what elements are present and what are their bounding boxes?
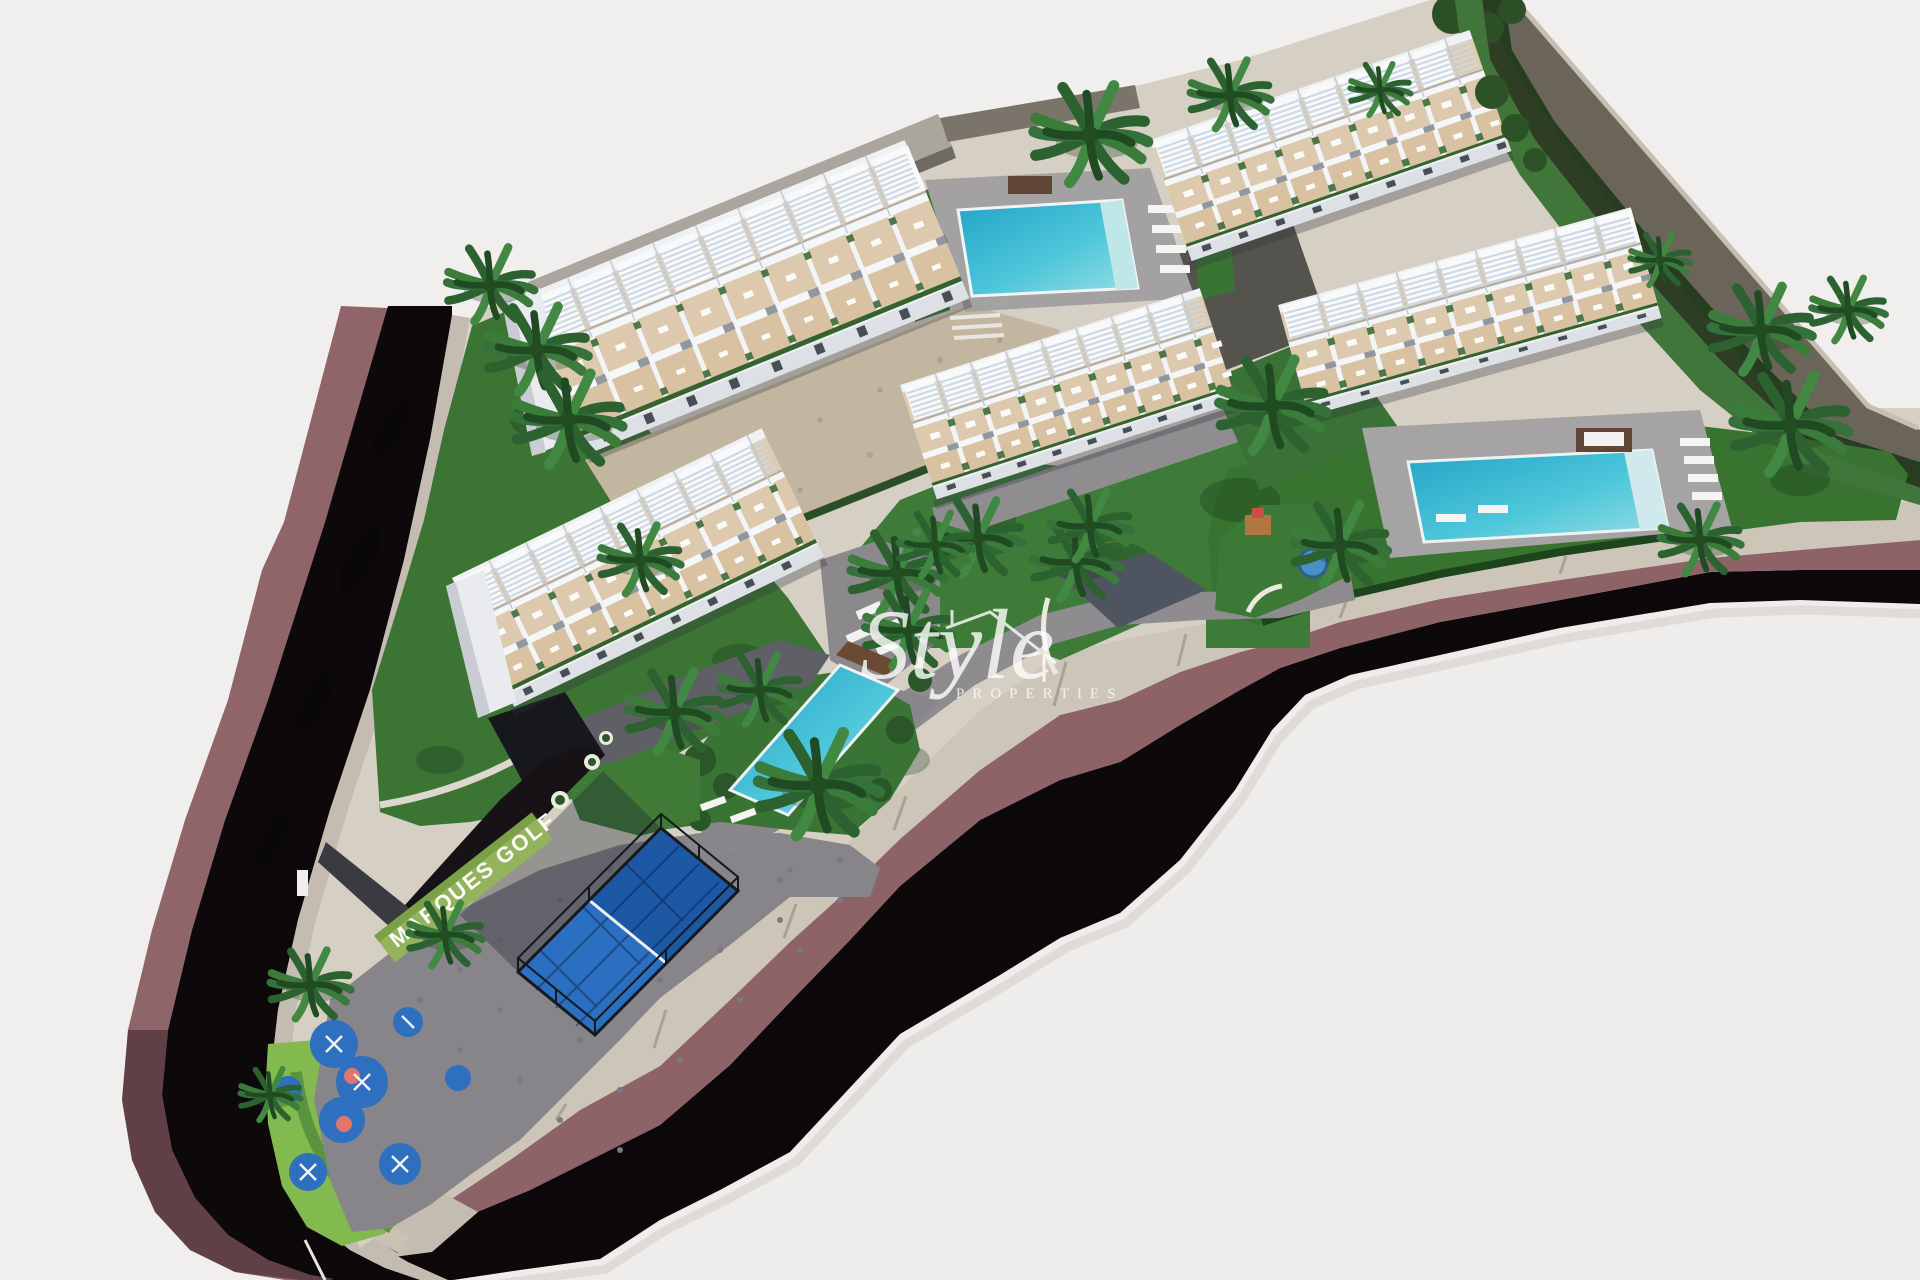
svg-text:Style: Style — [860, 589, 1054, 700]
svg-text:PROPERTIES: PROPERTIES — [956, 686, 1123, 702]
